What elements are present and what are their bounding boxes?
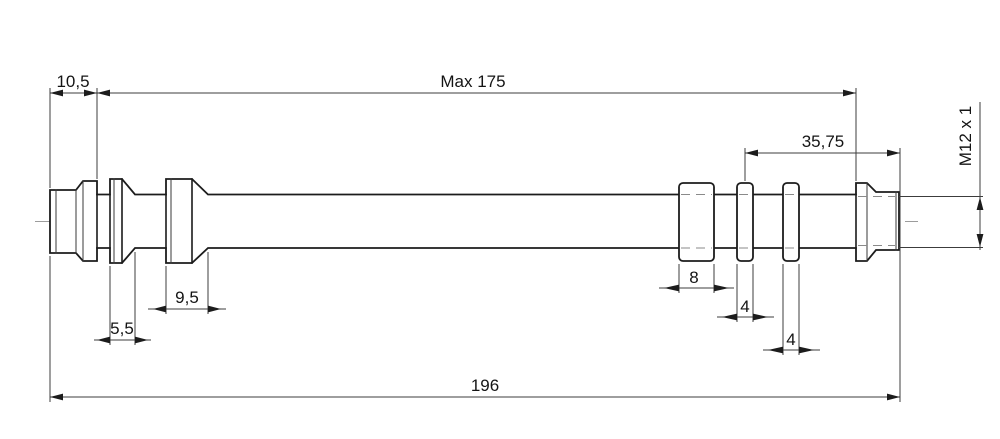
- arrowhead: [799, 347, 814, 354]
- dimension-thread-section: 35,75: [745, 132, 900, 402]
- dim-label-groove-2: 4: [786, 330, 795, 349]
- arrowhead: [843, 90, 856, 97]
- dimension-groove-1: 4: [717, 264, 774, 322]
- dim-label-max-length: Max 175: [440, 72, 505, 91]
- part-outline: [50, 179, 899, 263]
- dim-label-thread-spec: M12 x 1: [956, 106, 975, 166]
- dimension-thread-spec: M12 x 1: [899, 102, 983, 250]
- arrowhead: [208, 306, 221, 313]
- dim-label-overall-length: 196: [471, 376, 499, 395]
- dim-label-groove-1: 4: [740, 297, 749, 316]
- dimension-overall-length: 196: [50, 256, 900, 402]
- dimension-small-collar: 5,5: [94, 252, 151, 345]
- dimension-left-end: 10,5: [50, 72, 97, 188]
- arrowhead: [768, 347, 783, 354]
- dimension-groove-2: 4: [763, 264, 820, 355]
- dim-label-small-collar: 5,5: [110, 319, 134, 338]
- dim-label-large-collar: 9,5: [175, 288, 199, 307]
- arrowhead: [153, 306, 166, 313]
- arrowhead: [977, 234, 984, 247]
- dim-label-spacer-width: 8: [689, 268, 698, 287]
- arrowhead: [714, 285, 729, 292]
- dimension-max-length: Max 175: [97, 72, 856, 181]
- arrowhead: [722, 314, 737, 321]
- technical-drawing: 10,5 Max 175 35,75 M12 x 1 9,5 5,5: [0, 0, 1000, 439]
- arrowhead: [97, 90, 110, 97]
- arrowhead: [753, 314, 768, 321]
- arrowhead: [745, 150, 758, 157]
- dim-label-thread-section: 35,75: [802, 132, 845, 151]
- dimension-spacer-width: 8: [659, 264, 734, 293]
- dim-label-left-end: 10,5: [56, 72, 89, 91]
- arrowhead: [664, 285, 679, 292]
- arrowhead: [135, 337, 148, 344]
- arrowhead: [97, 337, 110, 344]
- arrowhead: [887, 150, 900, 157]
- arrowhead: [887, 394, 900, 401]
- arrowhead: [50, 394, 63, 401]
- drawing-canvas: 10,5 Max 175 35,75 M12 x 1 9,5 5,5: [0, 0, 1000, 439]
- arrowhead: [977, 197, 984, 210]
